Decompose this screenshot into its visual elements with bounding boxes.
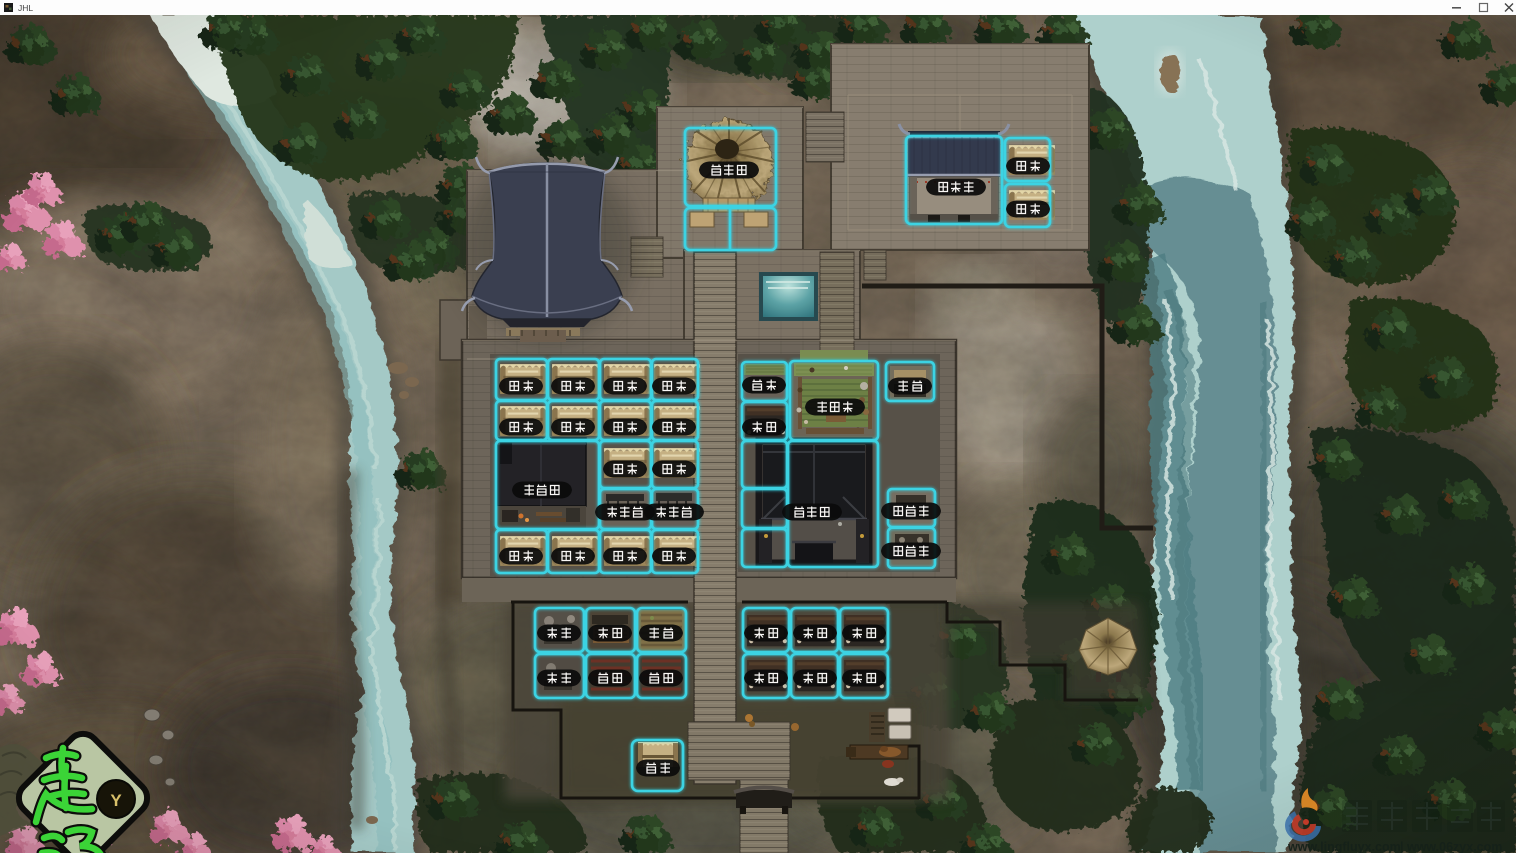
svg-text:www.lingfluyx.com: www.lingfluyx.com <box>1287 840 1401 853</box>
svg-text:| www.06zyx.com: | www.06zyx.com <box>1400 840 1502 853</box>
svg-text:Y: Y <box>110 791 122 810</box>
svg-text:JHL: JHL <box>18 3 33 13</box>
